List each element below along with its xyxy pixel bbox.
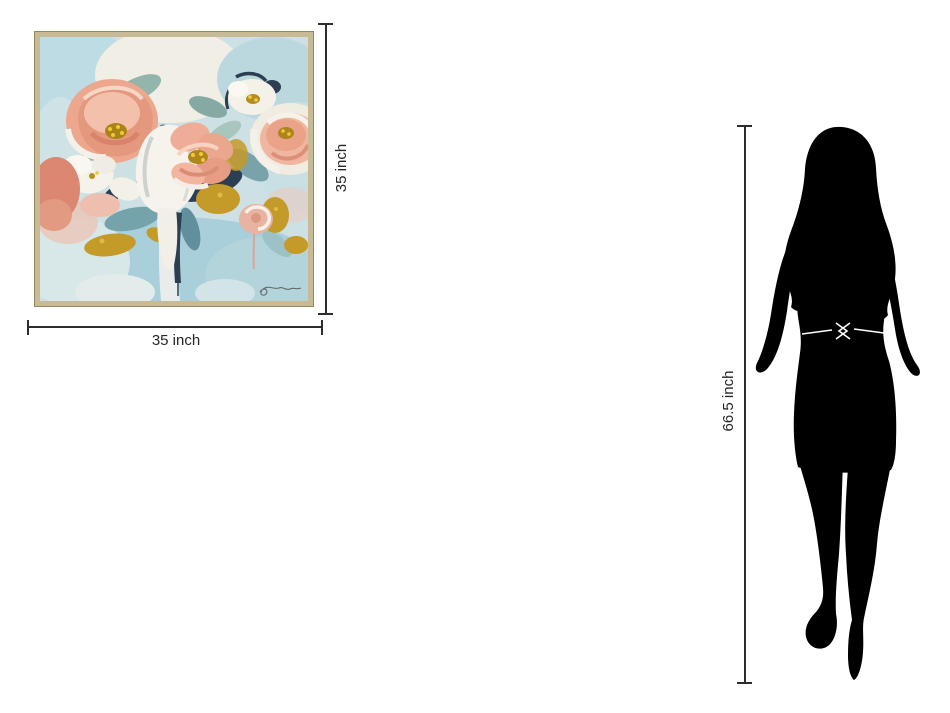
figure-height-line <box>744 126 746 683</box>
figure-height-label: 66.5 inch <box>721 361 737 441</box>
woman-silhouette <box>750 125 925 683</box>
silhouette-left-leg <box>797 455 843 649</box>
artwork-height-label: 35 inch <box>334 128 350 208</box>
artwork-width-label: 35 inch <box>136 333 216 349</box>
artwork-height-line <box>325 24 327 314</box>
artwork-image <box>40 37 308 301</box>
artwork-height-cap-top <box>318 23 333 25</box>
silhouette-right-leg <box>845 455 892 680</box>
product-dimension-diagram: 35 inch 35 inch 66.5 inch <box>0 0 950 713</box>
artwork-height-cap-bottom <box>318 313 333 315</box>
artwork-width-cap-right <box>321 320 323 335</box>
framed-canvas-artwork <box>35 32 313 306</box>
artwork-width-cap-left <box>27 320 29 335</box>
artwork-width-line <box>28 326 322 328</box>
